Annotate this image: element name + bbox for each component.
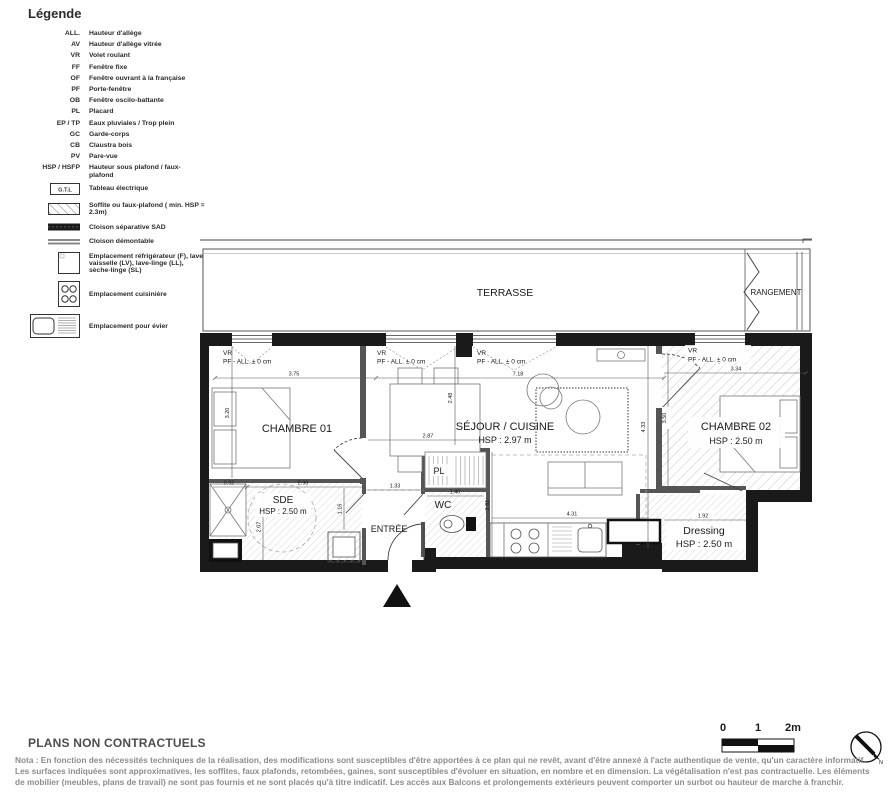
sofa: [548, 462, 622, 495]
toilet: [440, 516, 476, 533]
svg-text:2.48: 2.48: [448, 393, 454, 404]
svg-text:VR: VR: [477, 350, 486, 357]
chambre02-label: CHAMBRE 02: [701, 421, 771, 433]
pl-label: PL: [433, 466, 444, 476]
svg-text:7.18: 7.18: [513, 372, 524, 378]
chambre01-door: [334, 438, 362, 478]
sde-hsp: HSP : 2.50 m: [259, 507, 307, 516]
dressing-hsp: HSP : 2.50 m: [676, 539, 732, 550]
north-label: N: [879, 760, 883, 766]
svg-text:2.87: 2.87: [423, 434, 434, 440]
svg-text:VR: VR: [688, 348, 697, 355]
sideboard: [597, 349, 645, 361]
sde-label: SDE: [273, 495, 294, 506]
window-annotation-sejour-right: VR PF - ALL. ± 0 cm: [477, 350, 525, 366]
entrance-marker: [383, 584, 411, 607]
svg-text:3.50: 3.50: [662, 413, 668, 424]
kitchen-counter: [490, 523, 606, 557]
svg-text:0.92: 0.92: [224, 481, 235, 487]
svg-text:1: 1: [755, 722, 761, 734]
svg-text:2.90: 2.90: [298, 481, 309, 487]
rug-and-table: [536, 388, 628, 452]
chambre01-label: CHAMBRE 01: [262, 423, 332, 435]
sejour-label: SÉJOUR / CUISINE: [456, 420, 554, 433]
sejour-hsp: HSP : 2.97 m: [478, 435, 531, 445]
wc-door: [404, 494, 423, 515]
washing-machine: [328, 532, 360, 562]
svg-text:4.31: 4.31: [567, 512, 578, 518]
terrasse-label: TERRASSE: [477, 287, 534, 299]
floor-plan: TERRASSE RANGEMENT: [0, 0, 892, 800]
svg-text:1.33: 1.33: [390, 484, 401, 490]
plans-non-contractuels-title: PLANS NON CONTRACTUELS: [28, 736, 206, 750]
nota-text: Nota : En fonction des nécessités techni…: [15, 755, 877, 788]
svg-text:2.81: 2.81: [485, 500, 491, 511]
window-annotation-chambre01: VR PF - ALL. ± 0 cm: [223, 350, 271, 366]
svg-text:3.34: 3.34: [731, 367, 742, 373]
svg-text:2.07: 2.07: [257, 522, 263, 533]
svg-text:1.92: 1.92: [698, 514, 709, 520]
shower: [210, 484, 246, 536]
svg-text:PF - ALL. ± 0 cm: PF - ALL. ± 0 cm: [477, 359, 525, 366]
window-annotation-chambre02: VR PF - ALL. ± 0 cm: [685, 345, 751, 364]
svg-text:1.40: 1.40: [450, 490, 461, 496]
svg-text:1.16: 1.16: [338, 504, 344, 515]
rangement-label: RANGEMENT: [750, 288, 801, 297]
scale-bar: 0 1 2m: [720, 722, 801, 752]
svg-text:PF - ALL. ± 0 cm: PF - ALL. ± 0 cm: [377, 359, 425, 366]
plant: [527, 374, 562, 409]
sde-vanity: [209, 539, 242, 562]
floor-plan-page: { "legend": { "title": "Légende", "abbre…: [0, 0, 892, 800]
wc-label: WC: [435, 500, 452, 511]
svg-text:3.75: 3.75: [289, 372, 300, 378]
svg-text:2m: 2m: [785, 722, 801, 734]
window-annotation-sejour-left: VR PF - ALL. ± 0 cm: [377, 350, 425, 366]
wall-pier: [456, 333, 472, 357]
dressing-label: Dressing: [683, 525, 725, 537]
svg-text:PF - ALL. ± 0 cm: PF - ALL. ± 0 cm: [688, 357, 736, 364]
svg-text:4.33: 4.33: [641, 422, 647, 433]
svg-text:3.20: 3.20: [225, 408, 231, 419]
chambre02-hsp: HSP : 2.50 m: [709, 436, 762, 446]
svg-text:VR: VR: [223, 350, 232, 357]
fridge-location: [608, 520, 660, 543]
svg-text:VR: VR: [377, 350, 386, 357]
svg-text:PF - ALL. ± 0 cm: PF - ALL. ± 0 cm: [223, 359, 271, 366]
entree-label: ENTRÉE: [371, 524, 408, 534]
svg-text:0: 0: [720, 722, 726, 734]
terrasse-area: TERRASSE: [200, 239, 812, 331]
